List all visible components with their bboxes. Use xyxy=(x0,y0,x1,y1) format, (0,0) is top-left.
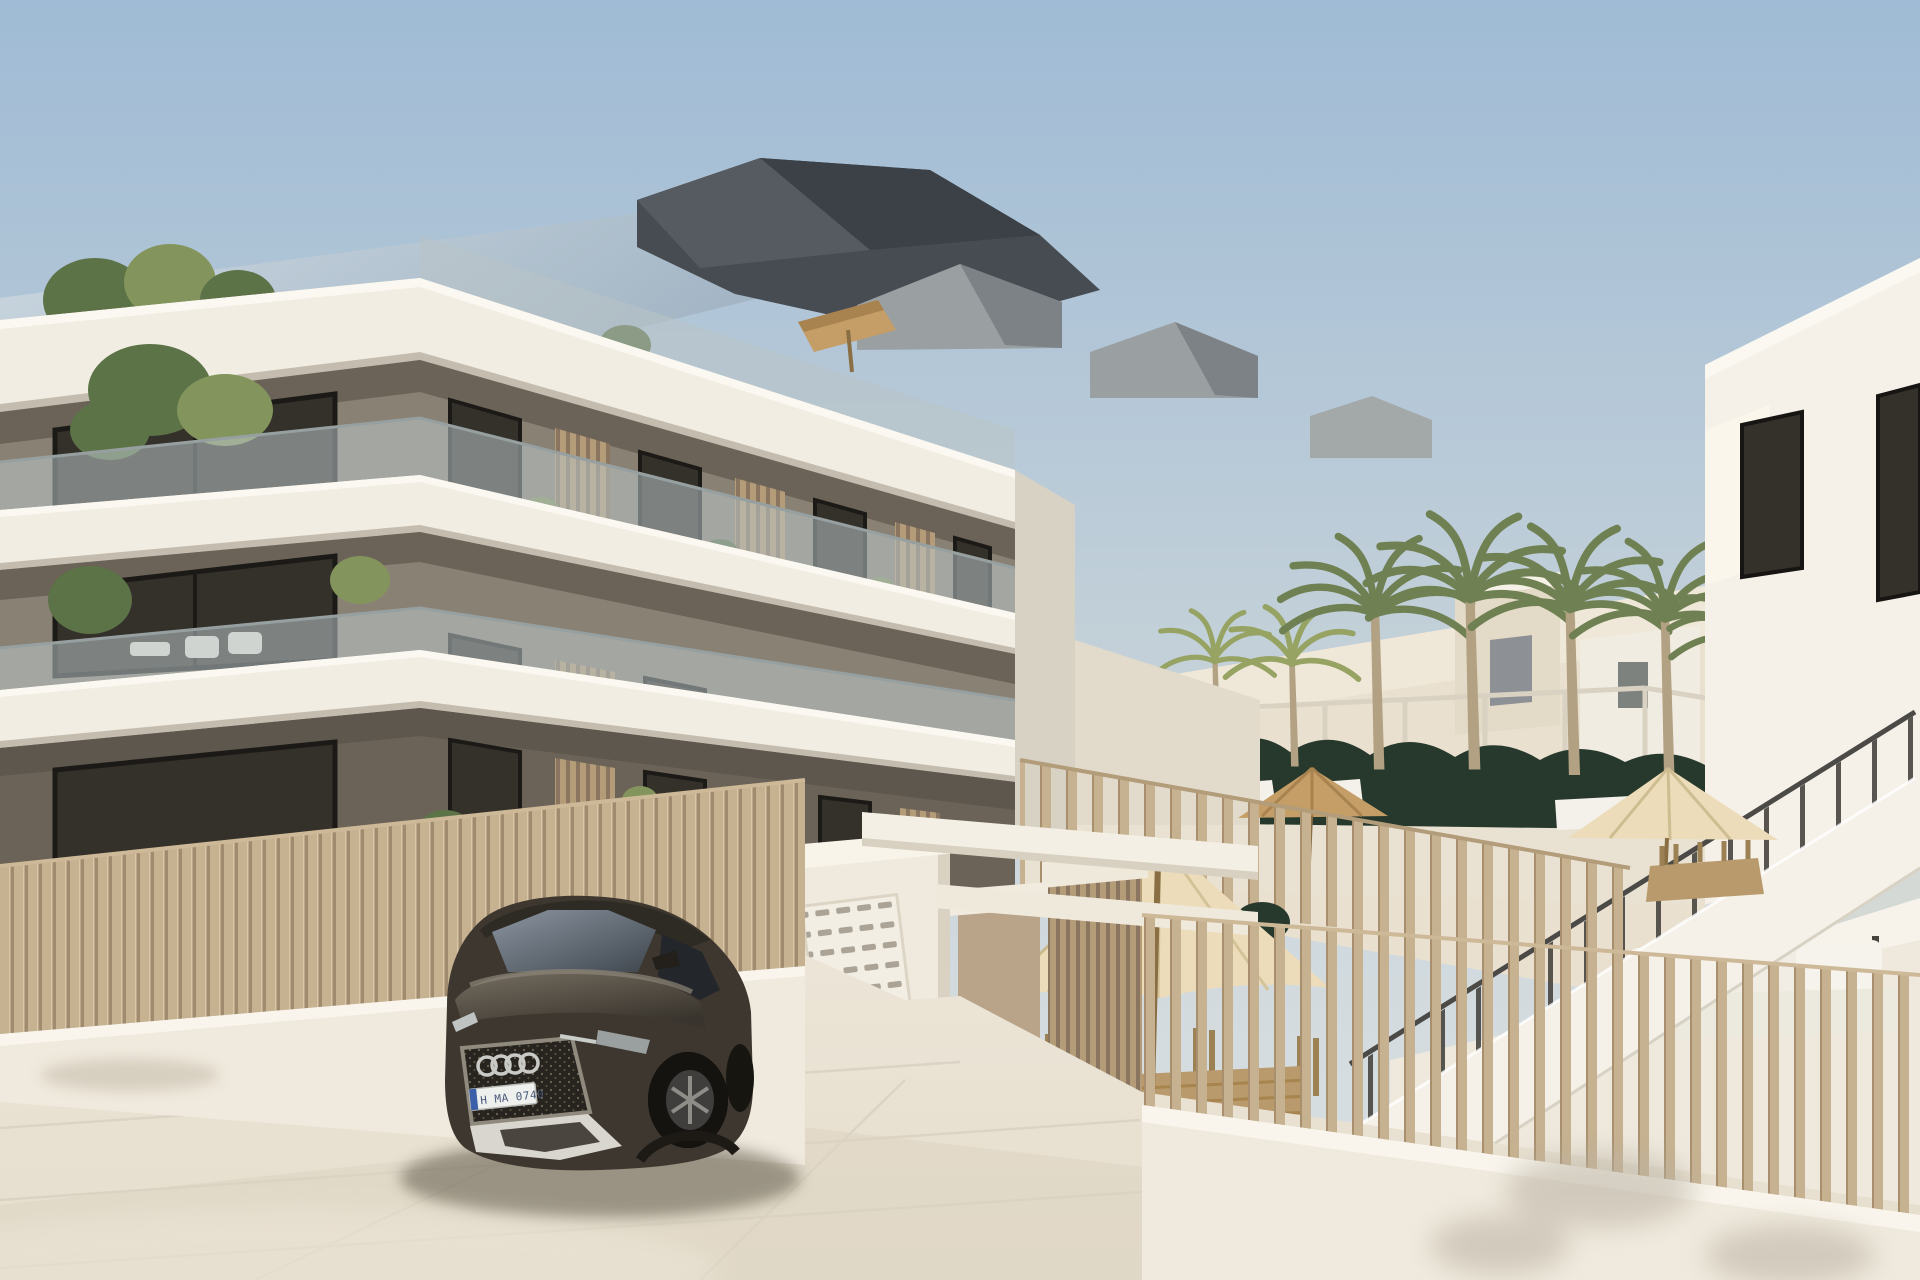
rear-wheel xyxy=(726,1044,754,1112)
street-wall-right xyxy=(1142,915,1920,1280)
grille xyxy=(462,1038,590,1124)
render-canvas: H MA 0740 xyxy=(0,0,1920,1280)
architectural-render: H MA 0740 xyxy=(0,0,1920,1280)
